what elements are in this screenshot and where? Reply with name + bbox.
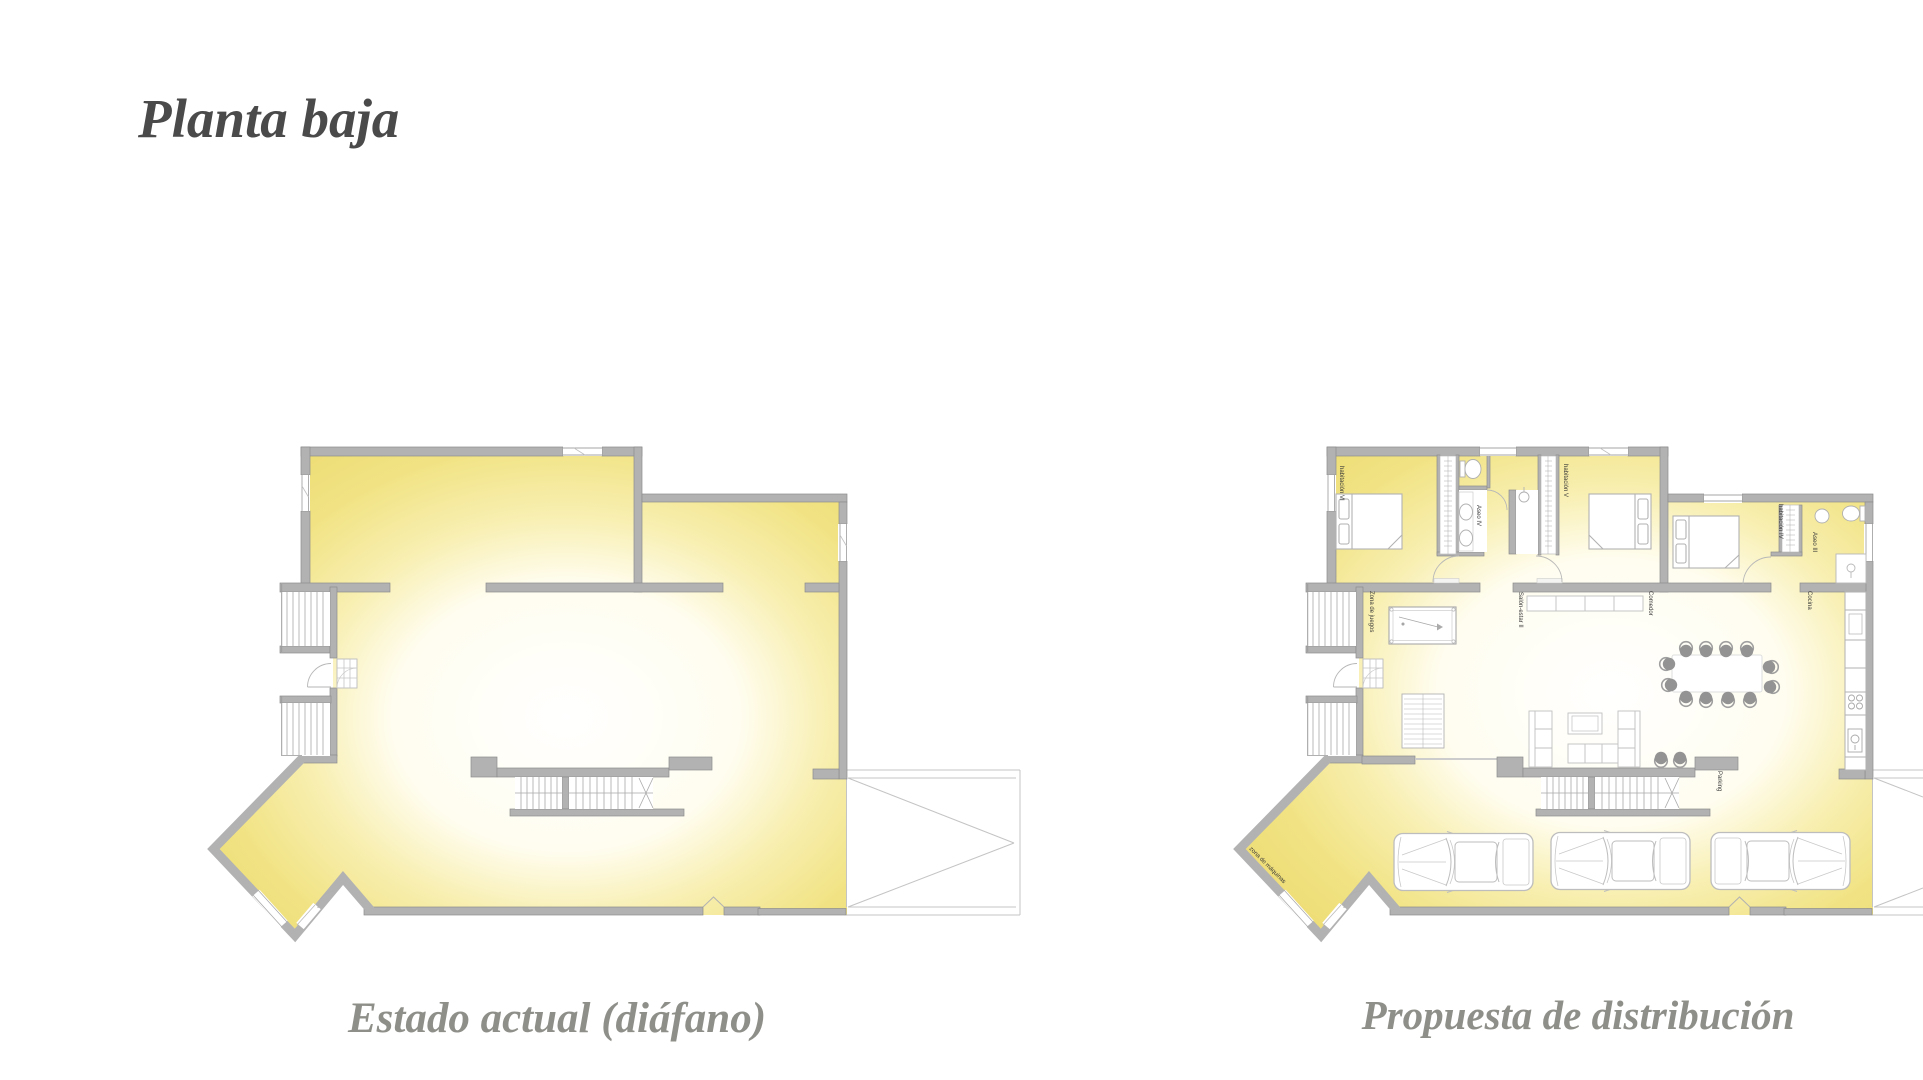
svg-text:Salón-estar II: Salón-estar II: [1517, 592, 1523, 628]
svg-text:Propuesta de distribución: Propuesta de distribución: [1361, 992, 1795, 1038]
svg-text:Aseo III: Aseo III: [1811, 532, 1817, 553]
svg-text:Cocina: Cocina: [1806, 591, 1812, 610]
svg-text:habitación IV: habitación IV: [1777, 504, 1783, 539]
svg-text:Aseo IV: Aseo IV: [1475, 505, 1481, 526]
svg-text:Zona de juegos: Zona de juegos: [1368, 591, 1374, 632]
svg-text:Planta baja: Planta baja: [137, 88, 399, 149]
svg-text:Parking: Parking: [1716, 771, 1722, 791]
svg-text:habitación VI: habitación VI: [1338, 466, 1344, 501]
svg-text:Comedor: Comedor: [1647, 591, 1653, 616]
svg-text:Estado actual (diáfano): Estado actual (diáfano): [347, 995, 766, 1042]
svg-text:habitación V: habitación V: [1562, 464, 1568, 497]
